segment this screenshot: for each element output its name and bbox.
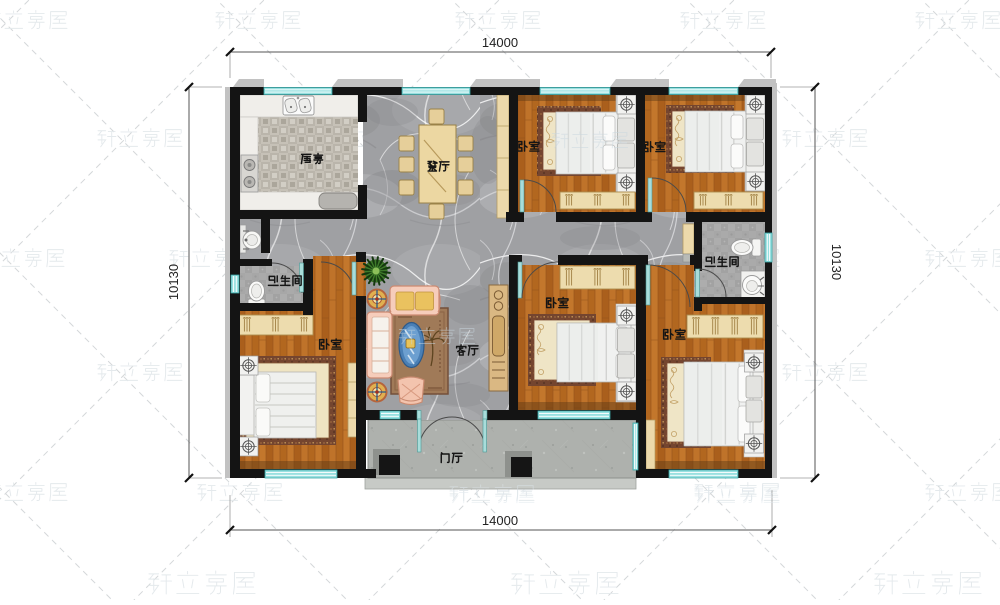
svg-text:14000: 14000: [482, 513, 518, 528]
svg-text:10130: 10130: [166, 264, 181, 300]
svg-text:14000: 14000: [482, 35, 518, 50]
svg-text:10130: 10130: [829, 244, 844, 280]
